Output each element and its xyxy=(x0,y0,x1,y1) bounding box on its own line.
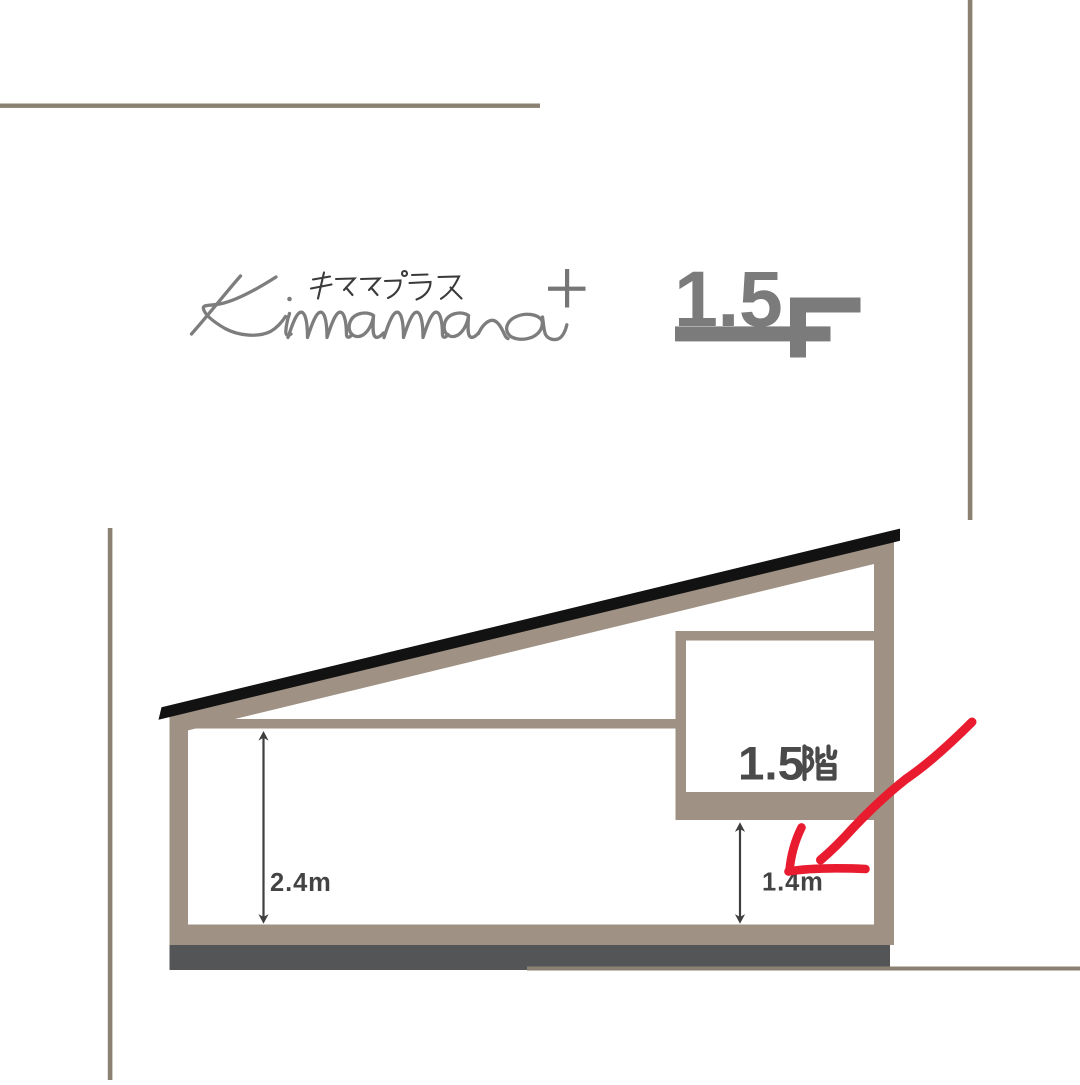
svg-text:1.5: 1.5 xyxy=(738,738,804,791)
svg-text:2.4m: 2.4m xyxy=(270,869,332,897)
